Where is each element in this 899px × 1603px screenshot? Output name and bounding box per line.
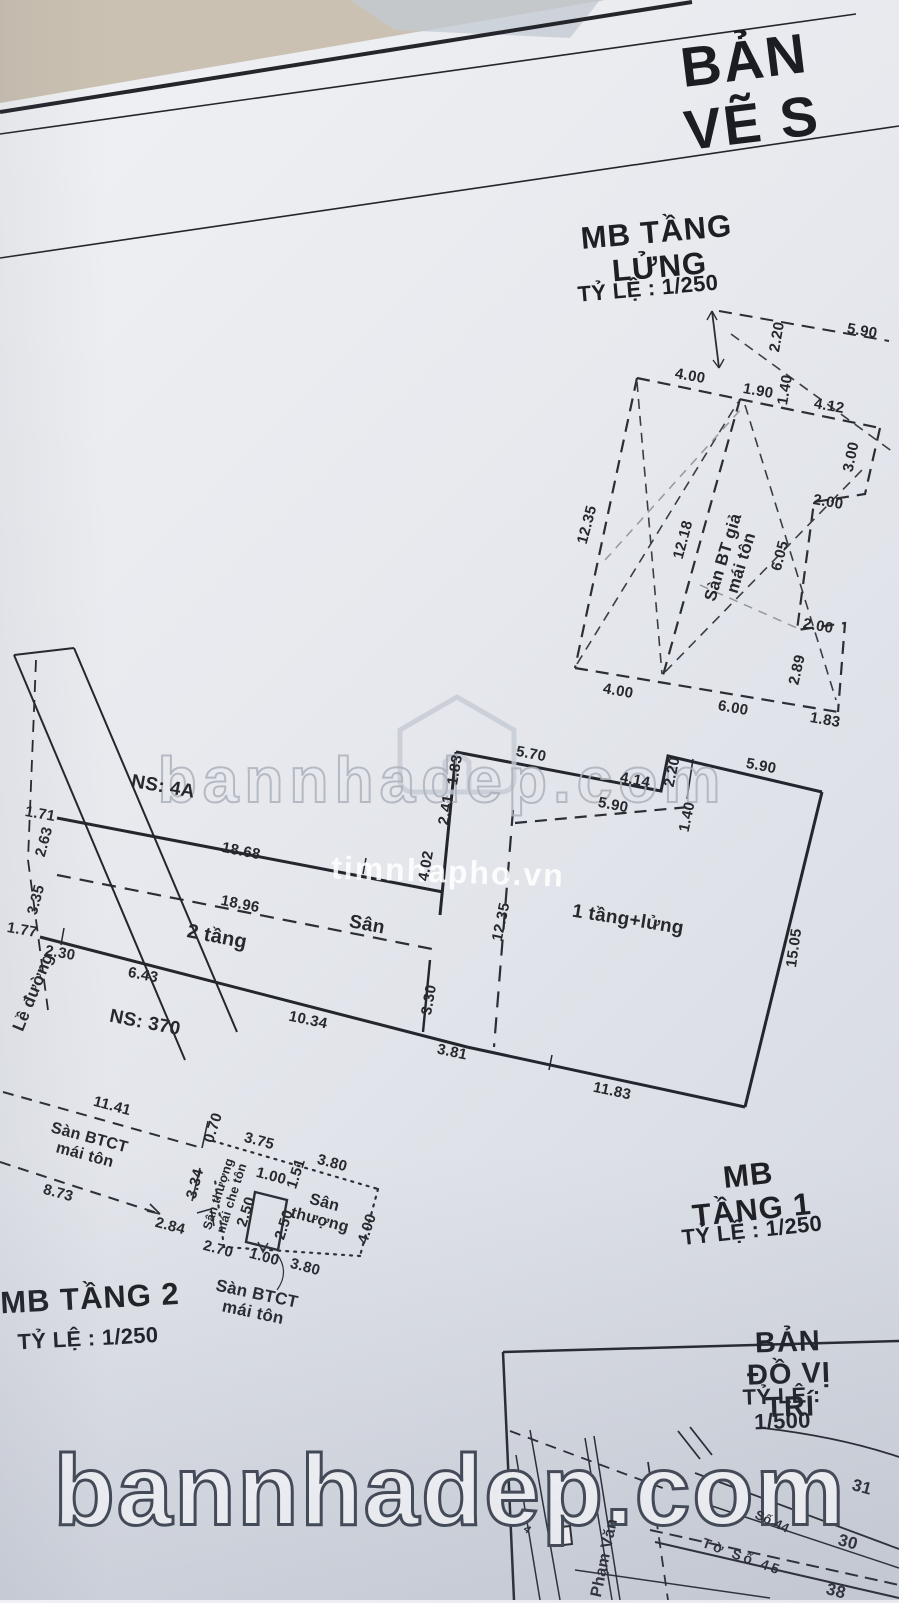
page-title: BẢN VẼ S (665, 21, 830, 164)
watermark-big: bannhadep.com (54, 1434, 847, 1549)
photographed-drawing: BẢN VẼ S bannhadep.com timnhapho.vn bann… (0, 0, 899, 1600)
map-scale: TỶ LỆ : 1/500 (723, 1382, 842, 1435)
